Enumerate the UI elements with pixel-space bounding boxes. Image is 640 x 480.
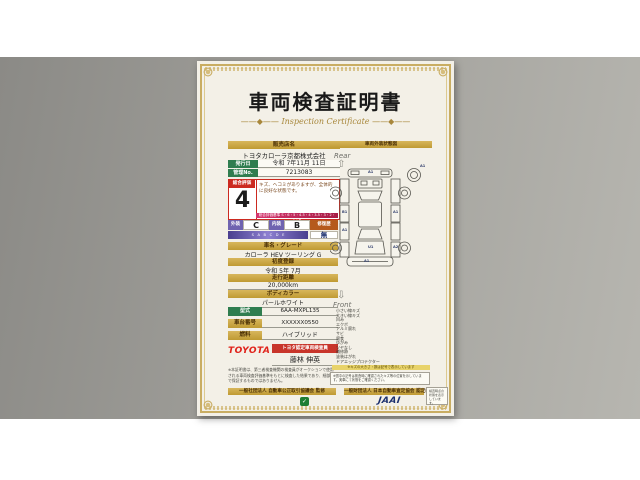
manage-no-value: 7213083: [258, 169, 340, 177]
field-first-registration-label: 初度登録: [228, 258, 338, 266]
issue-date-value: 令和 7年11月 11日: [258, 160, 340, 168]
model-code-row: 型式 6AA-MXPL135: [228, 307, 338, 316]
footer-fair-trade-bar: 一般社団法人 自動車公正取引協議会 監修: [228, 388, 336, 395]
inspector-name: 藤林 伸英: [272, 355, 338, 366]
fuel-value: ハイブリッド: [262, 331, 338, 340]
field-mileage-label: 走行距離: [228, 274, 338, 282]
issue-date-label: 発行日: [228, 160, 258, 168]
condition-ratings-row: 外装 C 内装 B 修復歴: [228, 220, 338, 230]
border-filigree-top: [205, 67, 446, 71]
field-mileage-value: 20,000km: [228, 282, 338, 290]
jaai-logo: JAAI: [377, 396, 401, 406]
field-model-label: 車名・グレード: [228, 242, 338, 250]
certificate-subtitle: ——◆—— Inspection Certificate ——◆——: [197, 117, 454, 126]
front-arrow-icon: ⇩: [337, 291, 345, 301]
corner-ornament: [436, 65, 450, 79]
corner-ornament: [201, 398, 215, 412]
exterior-grade: C: [243, 220, 269, 230]
exterior-label: 外装: [228, 220, 243, 230]
certificate-title: 車両検査証明書: [197, 86, 454, 115]
model-code-label: 型式: [228, 307, 262, 316]
field-body-color-label: ボディカラー: [228, 290, 338, 298]
overall-rating-score: 4: [230, 189, 255, 213]
fuel-row: 燃料 ハイブリッド: [228, 331, 338, 340]
car-exterior-diagram: A1 A1 B1 A1 A1 U1 A1 A2: [330, 162, 430, 296]
footer-side-note: 検査時点の状態を表示しています。: [426, 387, 448, 405]
border-filigree-bottom: [205, 406, 446, 410]
subtitle-text: Inspection Certificate: [281, 117, 369, 126]
flourish-right: ——◆——: [372, 117, 410, 126]
manage-no-label: 管理No.: [228, 169, 258, 177]
corner-ornament: [201, 65, 215, 79]
grade-scale-bar: S A B C D E: [228, 231, 308, 239]
manage-no-row: 管理No. 7213083: [228, 169, 340, 177]
diagram-header: 車両外装状態図: [330, 141, 432, 148]
damage-mark: U1: [368, 245, 373, 249]
damage-mark: A1: [420, 164, 425, 168]
chassis-no-value: XXXXXX0550: [262, 319, 338, 328]
flourish-left: ——◆——: [241, 117, 279, 126]
damage-mark: A1: [368, 170, 373, 174]
diagram-note: ※図中の記号は検査時に確認されたキズ等の位置を示しています。実車にて状態をご確認…: [330, 372, 430, 385]
chassis-no-row: 車台番号 XXXXXX0550: [228, 319, 338, 328]
fuel-label: 燃料: [228, 331, 262, 340]
damage-mark: B1: [342, 210, 347, 214]
interior-label: 内装: [269, 220, 284, 230]
damage-mark: A1: [364, 259, 369, 263]
chassis-no-label: 車台番号: [228, 319, 262, 328]
damage-mark: A1: [393, 210, 398, 214]
damage-mark: A2: [393, 245, 398, 249]
damage-mark: A1: [342, 228, 347, 232]
legend-note: ※キズの大きさ・数は記号で表示しています: [332, 365, 430, 370]
dealer-header: 販売店名: [228, 141, 340, 149]
scale-and-repair-row: S A B C D E 無: [228, 231, 338, 239]
damage-legend: 小さい線キズ 大きい線キズ 凹み エクボ アルミ腐れ サビ 腐食 ゆがみ ツヤな…: [336, 309, 428, 364]
legend-item: ドアエッジプロテクター: [336, 360, 428, 365]
rating-scale-strip: 総合評価基準 S・6・5・4.5・4・3.5・3・2・1・R: [256, 213, 338, 218]
overall-rating-box: 総合評価 4 キズ、ヘコミがありますが、全体的に良好な状態です。 総合評価基準 …: [228, 179, 340, 220]
inspector-badge: トヨタ認定車両検査員: [272, 344, 338, 353]
disclaimer-text: ※本証明書は、第三者検査機関の検査員がオークションで使用される車両検査評価基準を…: [228, 367, 336, 384]
interior-grade: B: [284, 220, 310, 230]
model-code-value: 6AA-MXPL135: [262, 307, 338, 316]
overall-rating-comment: キズ、ヘコミがありますが、全体的に良好な状態です。: [259, 183, 335, 196]
certification-mark-icon: ✓: [300, 397, 309, 406]
toyota-logo: TOYOTA: [228, 346, 270, 356]
screenshot: 車両検査証明書 ——◆—— Inspection Certificate ——◆…: [0, 0, 640, 480]
issue-date-row: 発行日 令和 7年11月 11日: [228, 160, 340, 168]
footer-jaai-bar: 一般財団法人 日本自動車査定協会 認定検査: [344, 388, 424, 395]
overall-rating-label: 総合評価: [229, 180, 255, 188]
